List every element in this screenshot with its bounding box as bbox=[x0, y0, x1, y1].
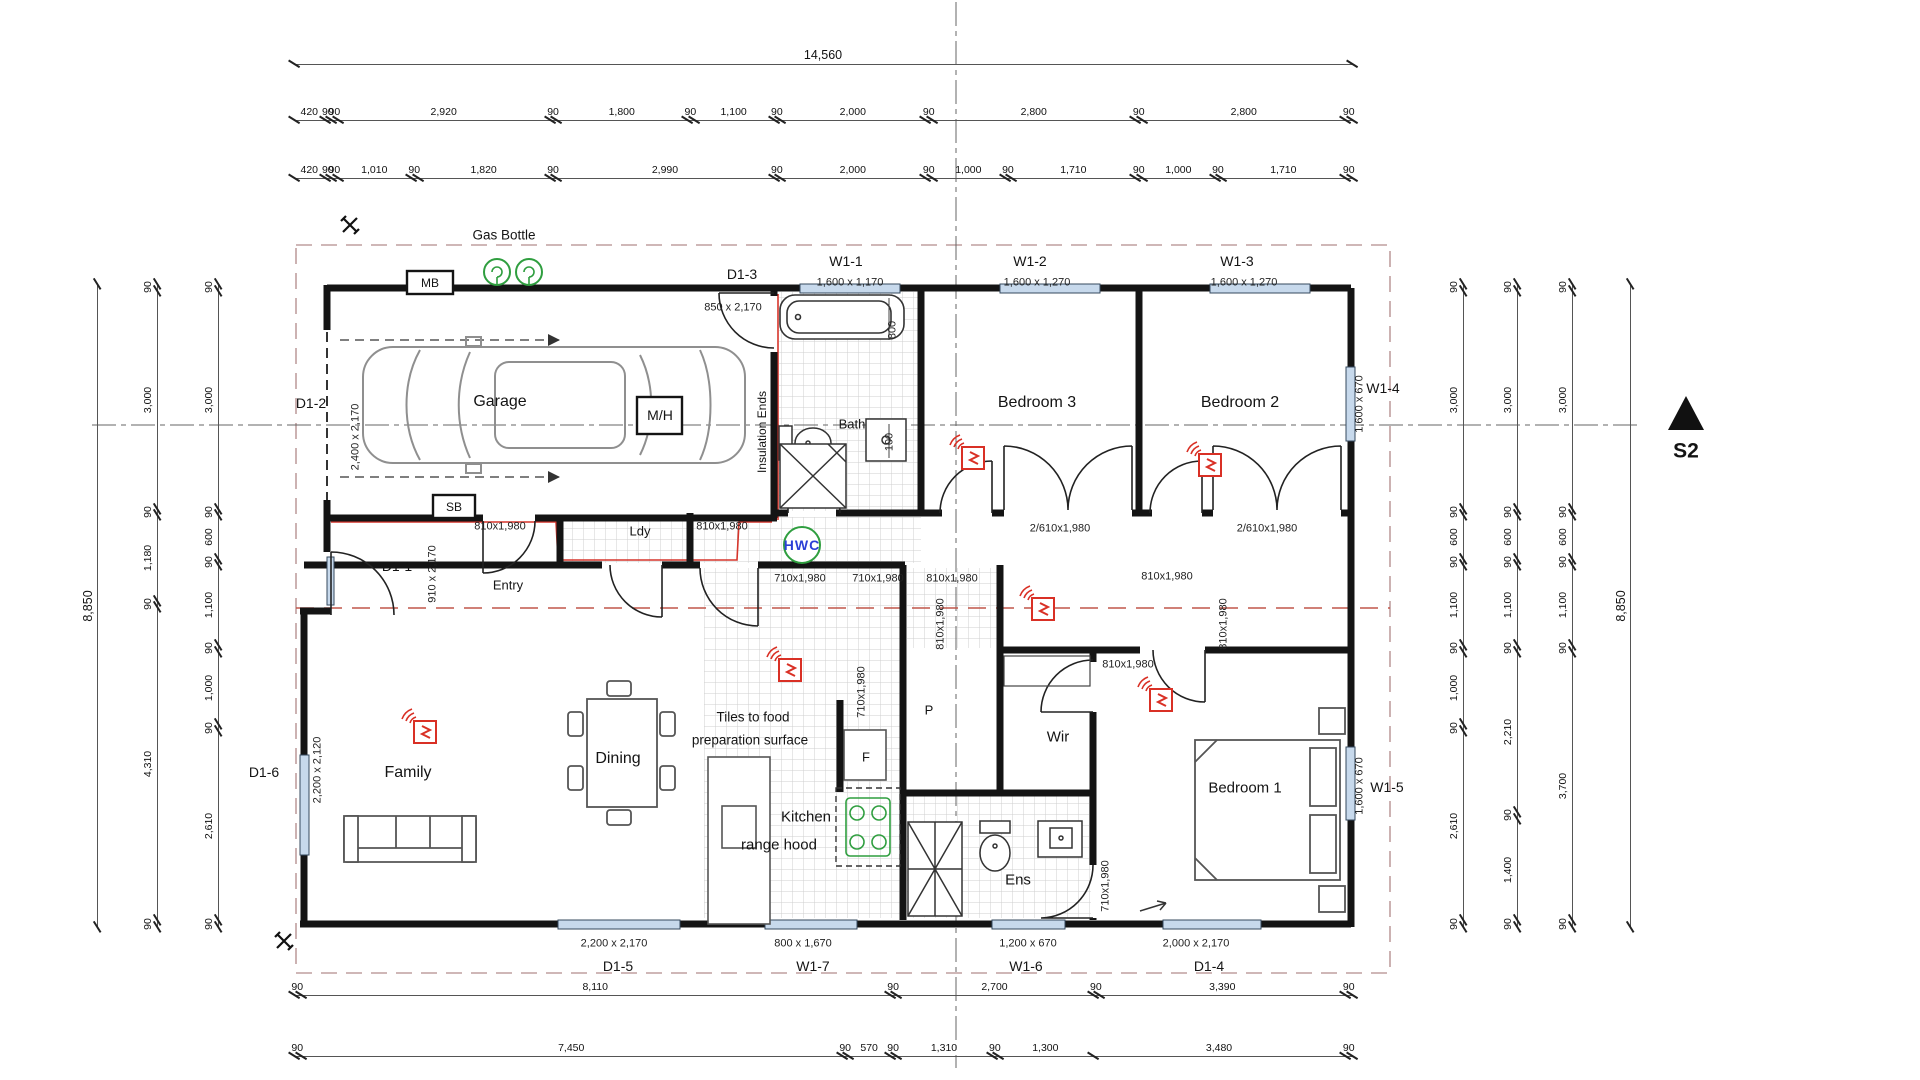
dim-label: 90 bbox=[203, 281, 215, 293]
door-size-tag: 810x1,980 bbox=[936, 598, 947, 649]
dim-label: 1,800 bbox=[609, 106, 635, 118]
dim-label: 90 bbox=[1448, 918, 1460, 930]
dim-label: 1,300 bbox=[1032, 1042, 1058, 1054]
dim-label: 1,100 bbox=[1557, 592, 1569, 618]
dim-label: 3,000 bbox=[142, 386, 154, 412]
dim-label: 90 bbox=[923, 164, 935, 176]
dim-label: 90 bbox=[1557, 643, 1569, 655]
room-label-kitchen-line2: range hood bbox=[741, 838, 817, 853]
window-size-w1-4: 1,600 x 670 bbox=[1355, 375, 1366, 433]
dim-label: 2,210 bbox=[1502, 719, 1514, 745]
dim-label: 90 bbox=[685, 106, 697, 118]
room-label-wardrobe: Wir bbox=[1047, 730, 1070, 745]
window-size-w1-3: 1,600 x 1,270 bbox=[1211, 278, 1278, 289]
window-size-w1-2: 1,600 x 1,270 bbox=[1004, 278, 1071, 289]
section-marker-label: S2 bbox=[1673, 441, 1699, 462]
dim-label: 90 bbox=[328, 106, 340, 118]
dim-label: 90 bbox=[1090, 981, 1102, 993]
dim-label: 420 bbox=[300, 164, 318, 176]
dim-label: 1,000 bbox=[1448, 675, 1460, 701]
window-id-w1-2: W1-2 bbox=[1013, 254, 1046, 268]
dim-label: 8,850 bbox=[1614, 590, 1628, 621]
wardrobe-doors-tag: 2/610x1,980 bbox=[1237, 524, 1298, 535]
door-id-d1-4: D1-4 bbox=[1194, 959, 1224, 973]
dim-label: 3,000 bbox=[1557, 386, 1569, 412]
dim-label: 3,000 bbox=[1448, 386, 1460, 412]
dim-label: 600 bbox=[1557, 528, 1569, 546]
wardrobe-doors-tag: 2/610x1,980 bbox=[1030, 524, 1091, 535]
window-id-w1-6: W1-6 bbox=[1009, 959, 1042, 973]
dim-label: 90 bbox=[203, 556, 215, 568]
dim-label: 2,610 bbox=[203, 813, 215, 839]
window-id-w1-7: W1-7 bbox=[796, 959, 829, 973]
room-label-dining: Dining bbox=[595, 751, 640, 767]
dim-label: 90 bbox=[203, 918, 215, 930]
meter-board-label: MB bbox=[421, 277, 439, 289]
dim-label: 1,000 bbox=[1165, 164, 1191, 176]
dim-label: 90 bbox=[142, 506, 154, 518]
dim-label: 90 bbox=[1502, 556, 1514, 568]
dim-label: 2,800 bbox=[1021, 106, 1047, 118]
floor-plan-sheet: Garage Bath Bedroom 3 Bedroom 2 Entry Ld… bbox=[0, 0, 1920, 1080]
door-size-d1-3: 850 x 2,170 bbox=[704, 303, 762, 314]
dim-label: 90 bbox=[203, 506, 215, 518]
door-id-d1-3: D1-3 bbox=[727, 267, 757, 281]
dim-label: 1,100 bbox=[1448, 592, 1460, 618]
room-label-entry: Entry bbox=[493, 579, 523, 592]
dim-label: 1,400 bbox=[1502, 856, 1514, 882]
window-size-w1-6: 1,200 x 670 bbox=[999, 939, 1057, 950]
insulation-ends-label: Insulation Ends bbox=[756, 391, 768, 473]
dim-label: 1,000 bbox=[955, 164, 981, 176]
dim-label: 90 bbox=[771, 164, 783, 176]
door-size-tag: 710x1,980 bbox=[1101, 860, 1112, 911]
dim-label: 90 bbox=[1448, 556, 1460, 568]
dim-label: 90 bbox=[1133, 106, 1145, 118]
door-size-tag: 810x1,980 bbox=[1102, 660, 1153, 671]
dim-label: 90 bbox=[1343, 164, 1355, 176]
dim-label: 90 bbox=[1343, 1042, 1355, 1054]
dim-label: 90 bbox=[1448, 722, 1460, 734]
dim-label: 90 bbox=[1557, 556, 1569, 568]
dim-label: 90 bbox=[203, 643, 215, 655]
window-id-w1-5: W1-5 bbox=[1370, 780, 1403, 794]
dim-label: 8,110 bbox=[582, 981, 608, 993]
tiles-note-line2: preparation surface bbox=[692, 733, 808, 747]
gas-bottle-label: Gas Bottle bbox=[472, 228, 535, 242]
dim-label: 420 bbox=[300, 106, 318, 118]
door-size-tag: 710x1,980 bbox=[852, 574, 903, 585]
dim-label: 90 bbox=[142, 598, 154, 610]
dim-label: 90 bbox=[887, 981, 899, 993]
dim-label: 3,390 bbox=[1209, 981, 1235, 993]
dim-label: 2,700 bbox=[981, 981, 1007, 993]
dim-label: 90 bbox=[1557, 281, 1569, 293]
dim-label: 1,000 bbox=[203, 675, 215, 701]
dim-label: 90 bbox=[547, 106, 559, 118]
dim-label: 1,010 bbox=[361, 164, 387, 176]
dim-label: 90 bbox=[291, 981, 303, 993]
door-size-tag: 710x1,980 bbox=[857, 666, 868, 717]
dim-label: 2,000 bbox=[840, 164, 866, 176]
dim-label: 90 bbox=[1133, 164, 1145, 176]
dim-label: 600 bbox=[1502, 528, 1514, 546]
dim-label: 90 bbox=[1502, 506, 1514, 518]
floor-plan-graphics bbox=[0, 0, 1920, 1080]
door-size-d1-4: 2,000 x 2,170 bbox=[1163, 939, 1230, 950]
dim-label: 1,180 bbox=[142, 545, 154, 571]
dim-label: 90 bbox=[1002, 164, 1014, 176]
door-size-tag: 710x1,980 bbox=[774, 574, 825, 585]
door-size-tag: 810x1,980 bbox=[696, 522, 747, 533]
window-id-w1-4: W1-4 bbox=[1366, 381, 1399, 395]
door-id-d1-6: D1-6 bbox=[249, 765, 279, 779]
dim-label: 3,700 bbox=[1557, 773, 1569, 799]
door-id-d1-5: D1-5 bbox=[603, 959, 633, 973]
dim-label: 3,480 bbox=[1206, 1042, 1232, 1054]
dim-label: 90 bbox=[1448, 643, 1460, 655]
room-label-bath: Bath bbox=[839, 418, 866, 431]
room-label-garage: Garage bbox=[473, 394, 526, 410]
dim-label: 600 bbox=[1448, 528, 1460, 546]
dim-label: 1,310 bbox=[931, 1042, 957, 1054]
door-size-d1-2: 2,400 x 2,170 bbox=[351, 404, 362, 471]
switch-board-label: SB bbox=[446, 501, 462, 513]
dim-label: 600 bbox=[203, 528, 215, 546]
window-size-w1-1: 1,600 x 1,170 bbox=[817, 278, 884, 289]
bath-dim-100: 100 bbox=[885, 433, 896, 451]
dim-label: 90 bbox=[142, 281, 154, 293]
dim-label: 90 bbox=[1502, 643, 1514, 655]
window-id-w1-1: W1-1 bbox=[829, 254, 862, 268]
bath-dim-800: 800 bbox=[888, 321, 899, 339]
dim-label: 90 bbox=[1448, 506, 1460, 518]
window-id-w1-3: W1-3 bbox=[1220, 254, 1253, 268]
room-label-fridge: F bbox=[862, 751, 870, 764]
dim-label: 90 bbox=[989, 1042, 1001, 1054]
dim-label: 90 bbox=[328, 164, 340, 176]
dim-label: 90 bbox=[1343, 981, 1355, 993]
dim-label: 1,100 bbox=[1502, 592, 1514, 618]
dim-label: 14,560 bbox=[804, 48, 842, 62]
dim-label: 90 bbox=[923, 106, 935, 118]
dim-label: 1,710 bbox=[1270, 164, 1296, 176]
dim-label: 3,000 bbox=[1502, 386, 1514, 412]
dim-label: 90 bbox=[1557, 506, 1569, 518]
manhole-label: M/H bbox=[647, 408, 673, 422]
dim-label: 4,310 bbox=[142, 751, 154, 777]
dim-label: 90 bbox=[887, 1042, 899, 1054]
dim-label: 1,100 bbox=[203, 592, 215, 618]
door-id-d1-1: D1-1 bbox=[382, 559, 412, 573]
hot-water-cylinder-label: HWC bbox=[784, 538, 820, 552]
dim-label: 90 bbox=[291, 1042, 303, 1054]
room-label-bedroom3: Bedroom 3 bbox=[998, 395, 1076, 411]
tiles-note-line1: Tiles to food bbox=[716, 710, 789, 724]
dim-label: 2,610 bbox=[1448, 813, 1460, 839]
window-size-w1-5: 1,600 x 670 bbox=[1355, 757, 1366, 815]
dim-label: 90 bbox=[547, 164, 559, 176]
room-label-bedroom1: Bedroom 1 bbox=[1208, 781, 1281, 796]
dim-label: 90 bbox=[142, 918, 154, 930]
room-label-kitchen-line1: Kitchen bbox=[781, 810, 831, 825]
dim-label: 3,000 bbox=[203, 386, 215, 412]
room-label-family: Family bbox=[384, 765, 431, 781]
door-size-tag: 810x1,980 bbox=[1219, 598, 1230, 649]
room-label-pantry: P bbox=[925, 704, 934, 717]
dim-label: 90 bbox=[771, 106, 783, 118]
dim-label: 7,450 bbox=[558, 1042, 584, 1054]
dim-label: 90 bbox=[1502, 918, 1514, 930]
window-size-w1-7: 800 x 1,670 bbox=[774, 939, 832, 950]
dim-label: 2,990 bbox=[652, 164, 678, 176]
door-size-d1-6: 2,200 x 2,120 bbox=[313, 737, 324, 804]
dim-label: 2,920 bbox=[431, 106, 457, 118]
dim-label: 2,000 bbox=[840, 106, 866, 118]
dim-label: 90 bbox=[1557, 918, 1569, 930]
dim-label: 1,100 bbox=[720, 106, 746, 118]
dim-label: 90 bbox=[1343, 106, 1355, 118]
dim-label: 90 bbox=[1502, 810, 1514, 822]
room-label-ensuite: Ens bbox=[1005, 873, 1031, 888]
dim-label: 90 bbox=[408, 164, 420, 176]
door-size-d1-1: 910 x 2,170 bbox=[428, 545, 439, 603]
dim-label: 90 bbox=[839, 1042, 851, 1054]
door-size-tag: 810x1,980 bbox=[1141, 572, 1192, 583]
dim-label: 90 bbox=[1448, 281, 1460, 293]
dim-label: 2,800 bbox=[1231, 106, 1257, 118]
dim-label: 1,710 bbox=[1060, 164, 1086, 176]
dim-label: 90 bbox=[1212, 164, 1224, 176]
dim-label: 8,850 bbox=[81, 590, 95, 621]
door-size-d1-5: 2,200 x 2,170 bbox=[581, 939, 648, 950]
dim-label: 1,820 bbox=[471, 164, 497, 176]
door-size-tag: 810x1,980 bbox=[474, 522, 525, 533]
door-size-tag: 810x1,980 bbox=[926, 574, 977, 585]
room-label-laundry: Ldy bbox=[630, 525, 651, 538]
room-label-bedroom2: Bedroom 2 bbox=[1201, 395, 1279, 411]
door-id-d1-2: D1-2 bbox=[296, 396, 326, 410]
dim-label: 90 bbox=[1502, 281, 1514, 293]
dim-label: 570 bbox=[860, 1042, 878, 1054]
dim-label: 90 bbox=[203, 722, 215, 734]
